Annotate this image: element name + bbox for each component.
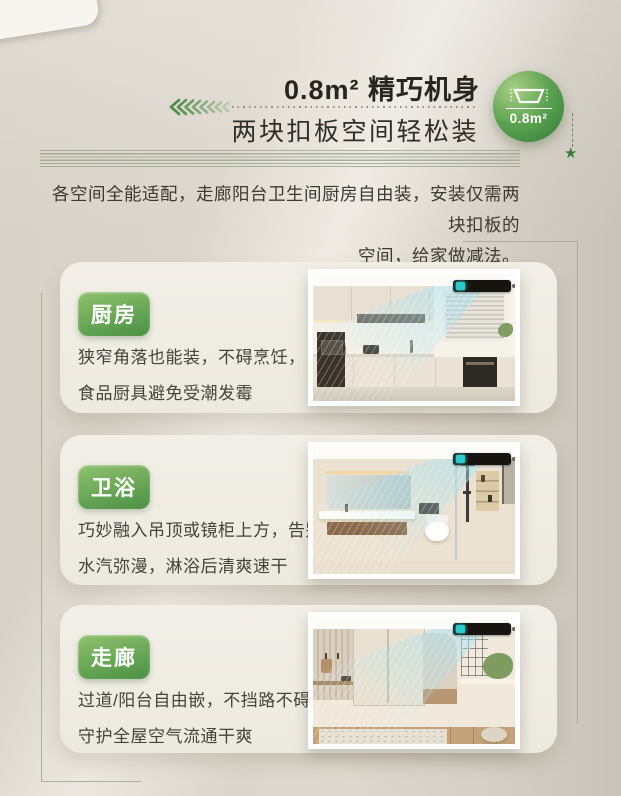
area-badge: 0.8m² (493, 71, 564, 142)
card-kitchen-desc-line1: 狭窄角落也能装，不碍烹饪， (78, 340, 306, 376)
card-kitchen: 厨房 狭窄角落也能装，不碍烹饪， 食品厨具避免受潮发霉 (60, 262, 557, 413)
bathroom-scene (313, 447, 515, 574)
promo-page: 0.8m² 精巧机身 两块扣板空间轻松装 0.8m² ★ 各空间全能 (0, 0, 621, 796)
kitchen-photo (308, 269, 520, 406)
kitchen-scene (313, 274, 515, 401)
room-tag-bathroom: 卫浴 (78, 465, 150, 509)
ceiling-dehumidifier-device (453, 280, 511, 292)
card-corridor: 走廊 过道/阳台自由嵌，不挡路不碍眼， 守护全屋空气流通干爽 (60, 605, 557, 753)
ceiling-dehumidifier-device (453, 453, 511, 465)
dashed-vertical-line (572, 113, 573, 147)
star-icon: ★ (564, 144, 577, 162)
badge-divider (506, 108, 552, 110)
card-corridor-desc-line2: 守护全屋空气流通干爽 (78, 719, 346, 755)
page-title: 0.8m² 精巧机身 (284, 68, 480, 107)
card-bathroom-desc-line2: 水汽弥漫，淋浴后清爽速干 (78, 549, 323, 585)
card-corridor-desc-line1: 过道/阳台自由嵌，不挡路不碍眼， (78, 683, 346, 719)
dotted-divider (232, 106, 477, 108)
room-tag-corridor: 走廊 (78, 635, 150, 679)
intro-line-1: 各空间全能适配，走廊阳台卫生间厨房自由装，安装仅需两块扣板的 (50, 179, 520, 241)
stripe-divider (40, 150, 520, 167)
card-kitchen-description: 狭窄角落也能装，不碍烹饪， 食品厨具避免受潮发霉 (78, 340, 306, 412)
card-bathroom-description: 巧妙融入吊顶或镜柜上方，告别 水汽弥漫，淋浴后清爽速干 (78, 513, 323, 585)
corridor-scene (313, 617, 515, 744)
card-corridor-description: 过道/阳台自由嵌，不挡路不碍眼， 守护全屋空气流通干爽 (78, 683, 346, 755)
ceiling-dehumidifier-device (453, 623, 511, 635)
bathroom-photo (308, 442, 520, 579)
card-bathroom-desc-line1: 巧妙融入吊顶或镜柜上方，告别 (78, 513, 323, 549)
room-tag-kitchen: 厨房 (78, 292, 150, 336)
corridor-photo (308, 612, 520, 749)
page-subtitle: 两块扣板空间轻松装 (231, 112, 479, 148)
card-bathroom: 卫浴 巧妙融入吊顶或镜柜上方，告别 水汽弥漫，淋浴后清爽速干 (60, 435, 557, 585)
chevron-left-icons (168, 97, 230, 117)
corner-card-remnant (0, 0, 100, 44)
intro-paragraph: 各空间全能适配，走廊阳台卫生间厨房自由装，安装仅需两块扣板的 空间，给家做减法。 (50, 179, 520, 272)
recessed-unit-icon (507, 87, 551, 105)
card-kitchen-desc-line2: 食品厨具避免受潮发霉 (78, 376, 306, 412)
badge-value: 0.8m² (510, 111, 548, 126)
